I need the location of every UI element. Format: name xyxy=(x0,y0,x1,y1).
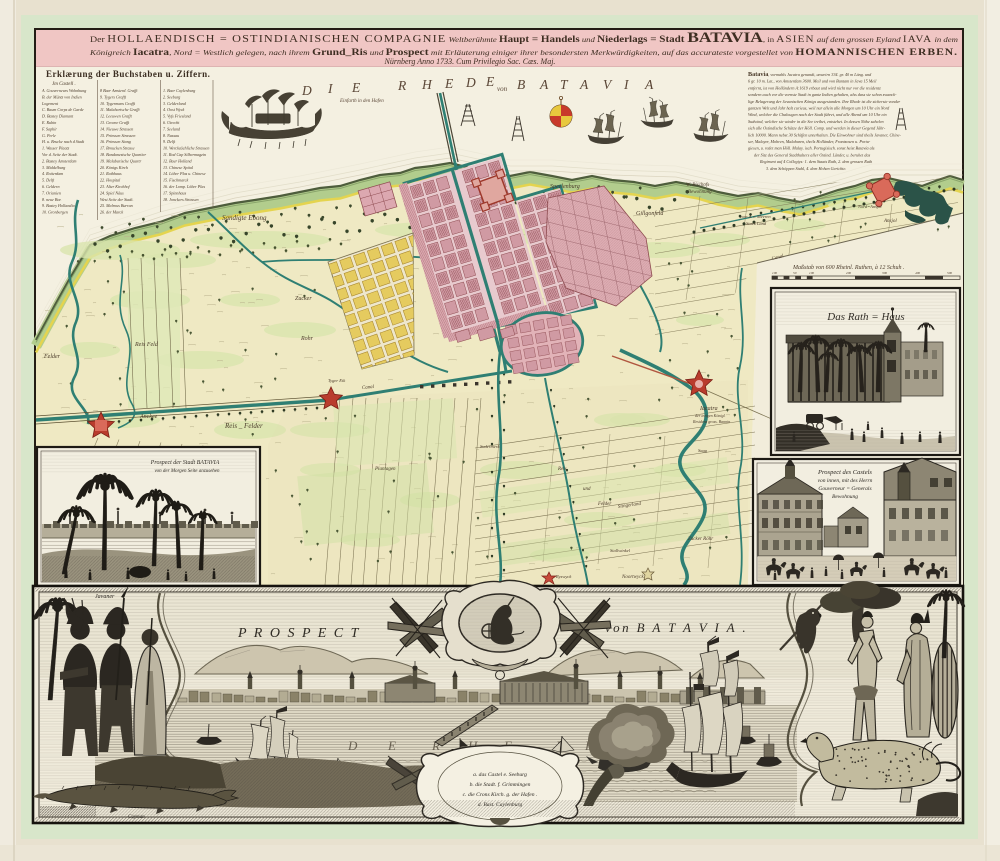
svg-text:Speelenburg: Speelenburg xyxy=(550,184,580,190)
svg-text:Javaner: Javaner xyxy=(95,594,115,600)
svg-text:7. Seeland: 7. Seeland xyxy=(163,126,181,131)
svg-text:der iezigen Königl.: der iezigen Königl. xyxy=(695,413,726,418)
svg-text:Einfarth in den Hafen: Einfarth in den Hafen xyxy=(339,99,384,104)
svg-text:Felder: Felder xyxy=(43,354,61,360)
svg-text:H. u. Brucke nach d Stadt: H. u. Brucke nach d Stadt xyxy=(41,139,85,144)
svg-text:11. Malabarische Grafft: 11. Malabarische Grafft xyxy=(100,107,140,112)
svg-text:a. das Castel e. Seeburg: a. das Castel e. Seeburg xyxy=(473,772,527,778)
svg-text:Jm Castell .: Jm Castell . xyxy=(52,82,76,87)
svg-text:23. Alter Kirchhof: 23. Alter Kirchhof xyxy=(100,184,131,189)
svg-text:Bewohnung: Bewohnung xyxy=(832,494,858,500)
svg-text:25. Malrous Burran: 25. Malrous Burran xyxy=(100,203,133,208)
svg-text:W. Bischofs: W. Bischofs xyxy=(686,183,709,188)
svg-text:50: 50 xyxy=(793,271,797,275)
svg-text:Prospect des Castels: Prospect des Castels xyxy=(817,469,872,476)
svg-text:Gillgonfeld: Gillgonfeld xyxy=(636,210,664,217)
svg-text:von B A T A V I A .: von B A T A V I A . xyxy=(605,620,748,635)
svg-text:D. Bastey Diamant: D. Bastey Diamant xyxy=(41,114,74,119)
svg-text:16. der Lomp. Löber Plas: 16. der Lomp. Löber Plas xyxy=(163,184,205,189)
svg-text:Residenz gross. Bannin: Residenz gross. Bannin xyxy=(692,419,730,424)
svg-text:1. Wasser Plaatz: 1. Wasser Plaatz xyxy=(42,146,70,151)
svg-text:8 Baer Amsterd. Grafft: 8 Baer Amsterd. Grafft xyxy=(100,88,138,93)
svg-text:c. die Crons Kirch. g. der Ha: c. die Crons Kirch. g. der Hafen . xyxy=(463,791,538,798)
svg-text:16. Prinssen Stang: 16. Prinssen Stang xyxy=(100,139,131,144)
svg-text:und: und xyxy=(583,487,591,492)
svg-text:Anckee: Anckee xyxy=(139,414,158,420)
svg-text:15. Fischmarck: 15. Fischmarck xyxy=(163,178,188,183)
svg-text:300: 300 xyxy=(882,271,887,275)
svg-text:15. Prinssen Strassen: 15. Prinssen Strassen xyxy=(100,133,135,138)
svg-text:E: E xyxy=(444,76,454,91)
svg-text:9. Bastey Hollandia: 9. Bastey Hollandia xyxy=(42,203,75,208)
svg-text:Logement: Logement xyxy=(41,101,59,106)
svg-text:b. die Stadt. f. Grimmin: b. die Stadt. f. Grimmingen xyxy=(470,781,531,788)
svg-text:E: E xyxy=(485,74,495,89)
svg-text:West Seite der Stadt.: West Seite der Stadt. xyxy=(100,197,134,202)
svg-text:Reis _ Felder: Reis _ Felder xyxy=(224,422,263,430)
svg-text:Sagg: Sagg xyxy=(698,448,708,453)
svg-text:9. Delft: 9. Delft xyxy=(163,139,176,144)
svg-text:26. der Marck: 26. der Marck xyxy=(100,210,123,215)
svg-text:F. Saphir: F. Saphir xyxy=(41,126,57,131)
svg-text:Reis Feld: Reis Feld xyxy=(134,342,159,348)
svg-text:8. Nassau: 8. Nassau xyxy=(163,133,179,138)
svg-text:4. Rotterdam: 4. Rotterdam xyxy=(42,171,63,176)
svg-text:14. Nieuwe Strassen: 14. Nieuwe Strassen xyxy=(100,126,133,131)
svg-text:R: R xyxy=(397,78,407,93)
svg-text:11. Rod Cap Silbermagzin: 11. Rod Cap Silbermagzin xyxy=(163,152,206,157)
svg-text:Batavia, vormahls Jacatra gena: Batavia, vormahls Jacatra genandt, unwei… xyxy=(748,71,872,78)
svg-text:lige Belagerung der Javanische: lige Belagerung der Javanischen Königs a… xyxy=(748,99,901,104)
svg-text:4. Oost Wyck: 4. Oost Wyck xyxy=(163,107,185,112)
svg-text:2. Bastey Amsterdam: 2. Bastey Amsterdam xyxy=(42,158,76,163)
svg-text:Bewohnung: Bewohnung xyxy=(688,190,712,195)
svg-text:6. Utrecht: 6. Utrecht xyxy=(163,120,180,125)
svg-text:1. Baer Caylenburg: 1. Baer Caylenburg xyxy=(163,88,195,93)
svg-text:sich alle Ostindische Schätze: sich alle Ostindische Schätze der Höll. … xyxy=(748,126,886,131)
svg-text:B. der Müntz von Indien: B. der Müntz von Indien xyxy=(42,94,82,99)
svg-text:A: A xyxy=(644,77,654,92)
svg-text:von: von xyxy=(497,85,508,93)
svg-text:D: D xyxy=(301,83,312,98)
svg-text:C. Baum Corps de Garde: C. Baum Corps de Garde xyxy=(42,107,84,112)
svg-text:Reis: Reis xyxy=(557,467,567,472)
svg-text:Vor d. Seite der Stadt.: Vor d. Seite der Stadt. xyxy=(42,152,78,157)
svg-text:100: 100 xyxy=(809,271,814,275)
svg-text:10. Tygermans Grafft: 10. Tygermans Grafft xyxy=(100,101,136,106)
svg-text:Erklærung der Buchstaben u. Zi: Erklærung der Buchstaben u. Ziffern. xyxy=(46,69,210,79)
svg-text:Tyger Eik: Tyger Eik xyxy=(328,378,346,383)
svg-text:21. Rathhaus: 21. Rathhaus xyxy=(100,171,122,176)
svg-text:Sudermerk: Sudermerk xyxy=(480,444,500,449)
svg-text:3. Gelderland: 3. Gelderland xyxy=(163,101,187,106)
svg-text:Iacatra: Iacatra xyxy=(699,406,718,412)
svg-text:12. Baer Holland: 12. Baer Holland xyxy=(163,158,192,163)
svg-text:Stallwinkel: Stallwinkel xyxy=(610,548,631,553)
svg-text:P R O S P E C T: P R O S P E C T xyxy=(237,626,360,641)
svg-text:6. Geldern: 6. Geldern xyxy=(42,184,60,189)
svg-text:3. Middelburg: 3. Middelburg xyxy=(42,165,65,170)
svg-text:Noortwyck: Noortwyck xyxy=(621,575,644,580)
svg-text:Stuck Land: Stuck Land xyxy=(746,221,767,226)
svg-text:E: E xyxy=(387,738,396,753)
svg-text:24. Spiel Näus: 24. Spiel Näus xyxy=(100,190,124,195)
svg-text:18. Jonckers Strassen: 18. Jonckers Strassen xyxy=(163,197,199,202)
svg-text:22. Hospital: 22. Hospital xyxy=(100,178,121,183)
svg-text:Rohr: Rohr xyxy=(300,336,314,342)
svg-text:Ryswyck: Ryswyck xyxy=(555,574,572,579)
svg-text:Felder: Felder xyxy=(597,502,611,507)
svg-text:18. Bandanesische Quartier: 18. Bandanesische Quartier xyxy=(100,152,146,157)
svg-text:Sandigte Ebong: Sandigte Ebong xyxy=(222,214,267,222)
svg-text:17. Spinnhaus: 17. Spinnhaus xyxy=(163,190,187,195)
svg-text:500: 500 xyxy=(947,271,952,275)
svg-text:A: A xyxy=(539,77,549,92)
svg-text:10. Gronbergen: 10. Gronbergen xyxy=(42,210,68,215)
svg-text:Maßstab von 600 Rheinl. Ruthen: Maßstab von 600 Rheinl. Ruthen, à 12 Sch… xyxy=(792,264,904,271)
svg-text:von innen, mit des Herrn: von innen, mit des Herrn xyxy=(818,478,873,484)
svg-text:Ansjol: Ansjol xyxy=(883,219,897,224)
svg-text:Zucker Röhr: Zucker Röhr xyxy=(688,537,713,542)
svg-text:Nürnberg Anno 1733. Cum Privi: Nürnberg Anno 1733. Cum Privilegio Sac. … xyxy=(384,57,556,66)
svg-text:5. Delft: 5. Delft xyxy=(42,178,55,183)
svg-text:13. Chinese Spital: 13. Chinese Spital xyxy=(163,165,194,170)
svg-text:Zucker: Zucker xyxy=(295,296,312,302)
svg-text:13. Groene Grafft: 13. Groene Grafft xyxy=(100,120,130,125)
svg-text:H: H xyxy=(421,77,433,92)
svg-text:D: D xyxy=(347,738,358,753)
svg-text:400: 400 xyxy=(915,271,920,275)
svg-text:20. Königs Kirch: 20. Königs Kirch xyxy=(100,165,128,170)
svg-text:G. Perle: G. Perle xyxy=(42,133,56,138)
svg-text:Gouverneur = Generals: Gouverneur = Generals xyxy=(818,486,871,492)
svg-text:B: B xyxy=(517,77,525,92)
svg-text:A. Gouverneurs Wohnhung: A. Gouverneurs Wohnhung xyxy=(41,88,86,93)
svg-text:10. Werckzächliche Strassen: 10. Werckzächliche Strassen xyxy=(163,146,209,151)
svg-text:E: E xyxy=(351,80,361,95)
svg-text:vom d. v. Meeren: vom d. v. Meeren xyxy=(740,214,771,219)
svg-text:17. Broucken Strasse: 17. Broucken Strasse xyxy=(100,146,135,151)
svg-text:100: 100 xyxy=(772,271,777,275)
svg-text:E. Rubin: E. Rubin xyxy=(41,120,56,125)
svg-text:2. Seeburg: 2. Seeburg xyxy=(163,94,180,99)
svg-text:12. Leeuwen Grafft: 12. Leeuwen Grafft xyxy=(100,114,133,119)
svg-text:A: A xyxy=(579,77,589,92)
svg-text:7. Orianien: 7. Orianien xyxy=(42,190,61,195)
svg-text:14. Löber Plas u. Chinese: 14. Löber Plas u. Chinese xyxy=(163,171,206,176)
svg-text:D: D xyxy=(465,75,476,90)
svg-text:8. neue Bor.: 8. neue Bor. xyxy=(42,197,62,202)
svg-text:5. Vyfs Friesland: 5. Vyfs Friesland xyxy=(163,114,192,119)
svg-text:Plantagen: Plantagen xyxy=(374,467,396,472)
svg-text:19. Malabarische Quartr: 19. Malabarische Quartr xyxy=(100,158,142,163)
svg-text:Nord=Ansjol: Nord=Ansjol xyxy=(857,204,882,209)
svg-text:9. Tygers Grafft: 9. Tygers Grafft xyxy=(100,94,127,99)
svg-text:200: 200 xyxy=(846,271,851,275)
